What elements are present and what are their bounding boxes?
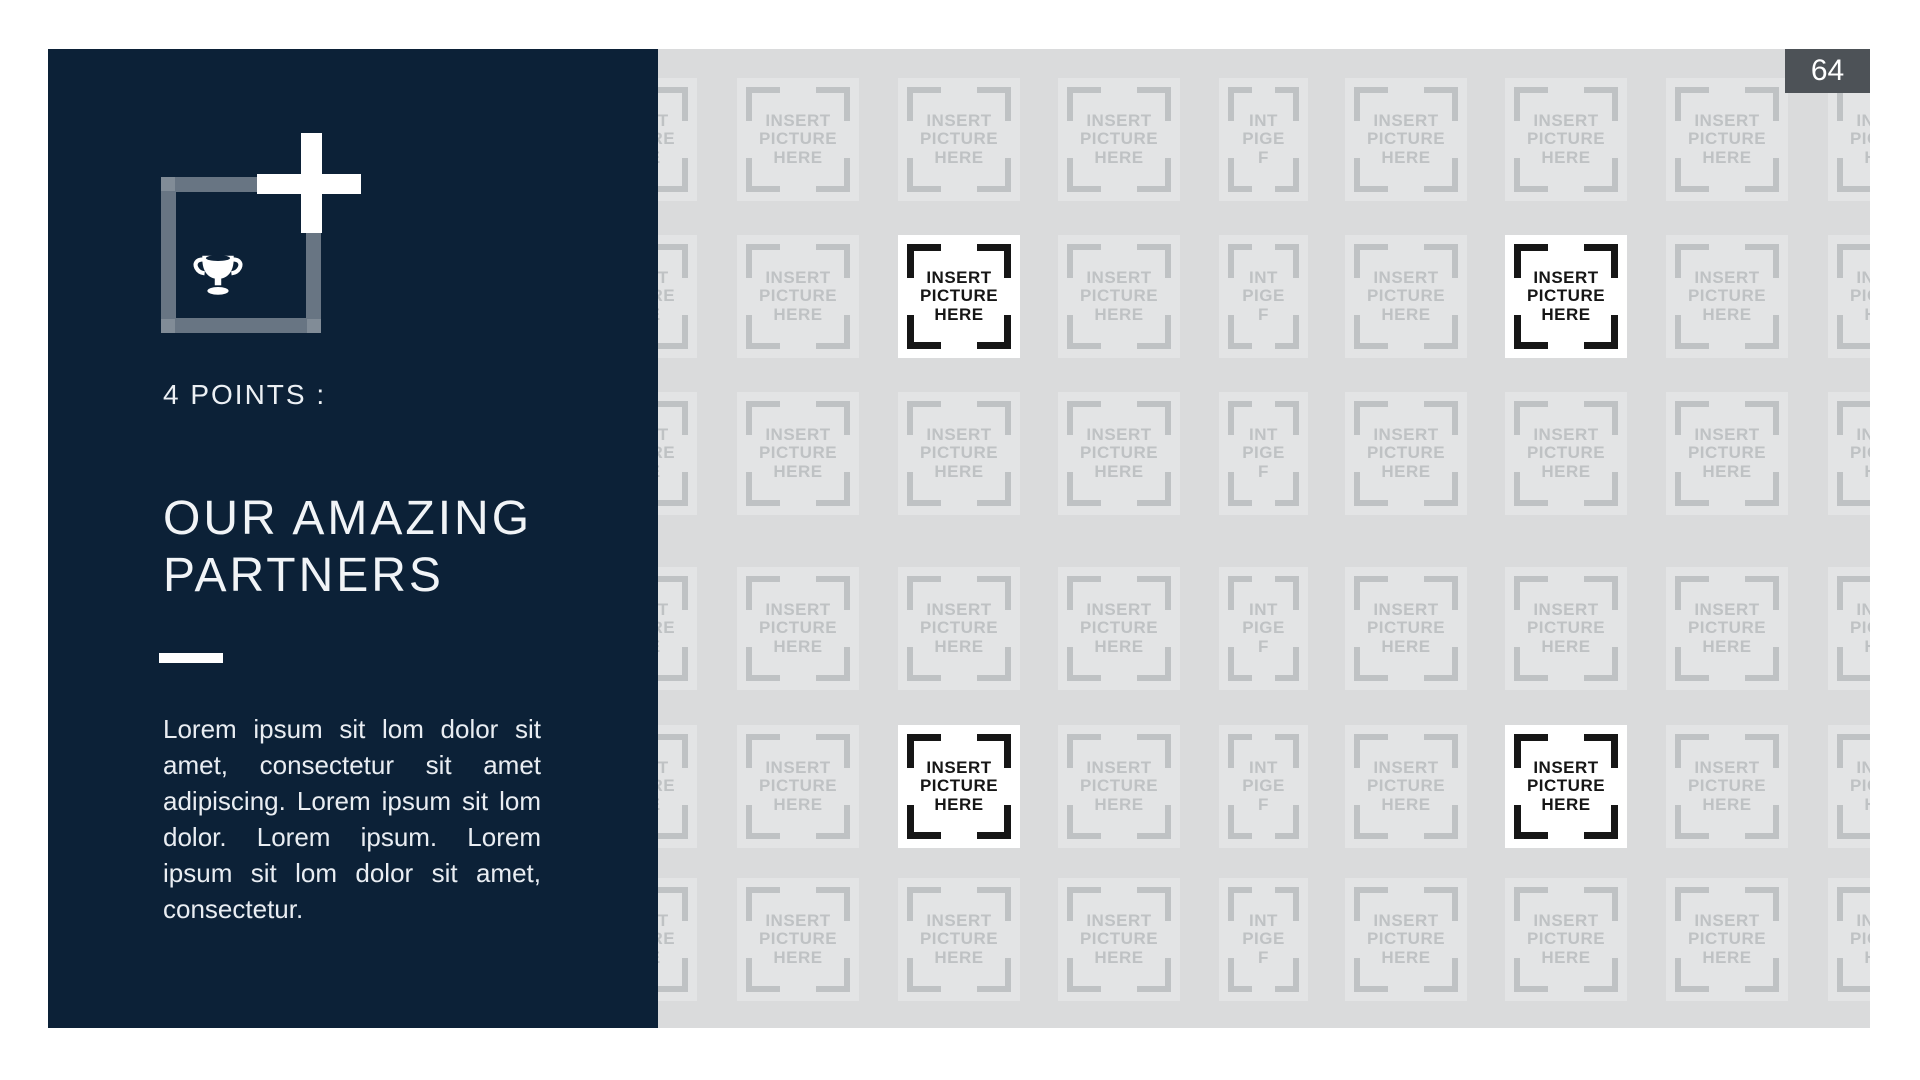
placeholder-label: INSERTPICTUREHERE: [1345, 725, 1467, 848]
placeholder-label-line: PICTURE: [1080, 130, 1158, 149]
placeholder-label: INSERTPICTUREHERE: [1505, 878, 1627, 1001]
placeholder-label: INSERTPICTUREHERE: [1345, 567, 1467, 690]
placeholder-label-line: PICTURE: [1688, 619, 1766, 638]
placeholder-label-line: PIGE: [1242, 619, 1285, 638]
placeholder-label: INSERTPICTUREHERE: [1666, 725, 1788, 848]
placeholder-label-line: PICTURE: [920, 619, 998, 638]
picture-placeholder: INSERTPICTUREHERE: [898, 567, 1020, 690]
placeholder-label-line: INSERT: [1373, 269, 1438, 288]
picture-placeholder: INSERTPICTUREHERE: [1058, 725, 1180, 848]
placeholder-label-line: HERE: [934, 149, 983, 168]
placeholder-label-line: PICTURE: [759, 130, 837, 149]
placeholder-label-line: INSERT: [1856, 759, 1870, 778]
placeholder-label-line: HERE: [1094, 949, 1143, 968]
placeholder-label-line: INSERT: [1694, 601, 1759, 620]
placeholder-label: INSERTPICTUREHERE: [898, 78, 1020, 201]
placeholder-label: INSERTPICTUREHERE: [1345, 235, 1467, 358]
placeholder-label-line: INSERT: [1086, 426, 1151, 445]
placeholder-label: INSERTPICTUREHERE: [898, 725, 1020, 848]
placeholder-label-line: INSERT: [1086, 912, 1151, 931]
placeholder-label-line: HERE: [934, 638, 983, 657]
placeholder-label-line: HERE: [1541, 796, 1590, 815]
frame-corner-accent: [161, 319, 175, 333]
placeholder-label-line: INSERT: [1856, 601, 1870, 620]
placeholder-label-line: PICTURE: [759, 444, 837, 463]
placeholder-label-line: PICTURE: [1850, 130, 1870, 149]
picture-placeholder: INTPIGEF: [1219, 78, 1308, 201]
placeholder-label-line: PICTURE: [1688, 130, 1766, 149]
picture-placeholder: INSERTPICTUREHERE: [1666, 78, 1788, 201]
picture-placeholder: INSERTPICTUREHERE: [737, 392, 859, 515]
placeholder-label-line: INSERT: [1533, 426, 1598, 445]
placeholder-label: INSERTPICTUREHERE: [1828, 567, 1870, 690]
picture-placeholder: INSERTPICTUREHERE: [1828, 725, 1870, 848]
picture-placeholder: INTPIGEF: [1219, 392, 1308, 515]
placeholder-label-line: PICTURE: [1080, 930, 1158, 949]
placeholder-label-line: HERE: [1094, 149, 1143, 168]
placeholder-label-line: INSERT: [1086, 601, 1151, 620]
picture-placeholder: INSERTPICTUREHERE: [1828, 878, 1870, 1001]
placeholder-label-line: PICTURE: [1080, 619, 1158, 638]
placeholder-label: INSERTPICTUREHERE: [898, 878, 1020, 1001]
placeholder-label-line: INSERT: [1373, 912, 1438, 931]
placeholder-label-line: INSERT: [1856, 426, 1870, 445]
picture-placeholder-highlight[interactable]: INSERTPICTUREHERE: [898, 235, 1020, 358]
placeholder-label-line: F: [1258, 796, 1269, 815]
picture-placeholder: INSERTPICTUREHERE: [1666, 878, 1788, 1001]
placeholder-label-line: HERE: [1541, 306, 1590, 325]
placeholder-label: INTPIGEF: [1219, 235, 1308, 358]
trophy-icon: [189, 253, 247, 301]
placeholder-label-line: F: [1258, 149, 1269, 168]
placeholder-label-line: HERE: [1381, 796, 1430, 815]
placeholder-label-line: PIGE: [1242, 287, 1285, 306]
frame-corner-accent: [307, 319, 321, 333]
slide: INSERTPICTUREHEREINSERTPICTUREHEREINSERT…: [48, 49, 1870, 1028]
placeholder-label-line: PICTURE: [1367, 130, 1445, 149]
placeholder-label-line: INSERT: [1694, 269, 1759, 288]
placeholder-label-line: PICTURE: [1527, 619, 1605, 638]
placeholder-label: INSERTPICTUREHERE: [898, 235, 1020, 358]
placeholder-label: INSERTPICTUREHERE: [1828, 392, 1870, 515]
placeholder-label-line: HERE: [1702, 463, 1751, 482]
placeholder-label-line: PICTURE: [1850, 930, 1870, 949]
page-number: 64: [1811, 54, 1844, 88]
placeholder-label: INSERTPICTUREHERE: [1828, 78, 1870, 201]
placeholder-label: INSERTPICTUREHERE: [1345, 78, 1467, 201]
placeholder-label: INSERTPICTUREHERE: [1505, 725, 1627, 848]
placeholder-label: INSERTPICTUREHERE: [1505, 235, 1627, 358]
picture-placeholder: INSERTPICTUREHERE: [1058, 78, 1180, 201]
placeholder-label-line: INSERT: [1694, 759, 1759, 778]
placeholder-label-line: PICTURE: [1080, 287, 1158, 306]
placeholder-label-line: HERE: [1702, 949, 1751, 968]
placeholder-label-line: HERE: [1864, 796, 1870, 815]
placeholder-label-line: PICTURE: [759, 619, 837, 638]
picture-placeholder: INTPIGEF: [1219, 567, 1308, 690]
placeholder-label: INTPIGEF: [1219, 725, 1308, 848]
placeholder-label-line: HERE: [934, 306, 983, 325]
placeholder-label: INSERTPICTUREHERE: [1828, 725, 1870, 848]
placeholder-label-line: PICTURE: [920, 930, 998, 949]
placeholder-label: INSERTPICTUREHERE: [1666, 878, 1788, 1001]
picture-placeholder: INSERTPICTUREHERE: [737, 78, 859, 201]
placeholder-label-line: INSERT: [1086, 759, 1151, 778]
picture-placeholder: INSERTPICTUREHERE: [1345, 567, 1467, 690]
placeholder-label-line: INSERT: [1373, 426, 1438, 445]
placeholder-label-line: PIGE: [1242, 444, 1285, 463]
picture-placeholder: INSERTPICTUREHERE: [1345, 725, 1467, 848]
placeholder-label-line: PICTURE: [1527, 130, 1605, 149]
picture-placeholder-highlight[interactable]: INSERTPICTUREHERE: [898, 725, 1020, 848]
picture-placeholder: INSERTPICTUREHERE: [1345, 235, 1467, 358]
placeholder-label-line: HERE: [1702, 149, 1751, 168]
placeholder-label-line: HERE: [1864, 638, 1870, 657]
placeholder-label-line: HERE: [1864, 463, 1870, 482]
placeholder-label-line: INSERT: [926, 112, 991, 131]
picture-placeholder: INSERTPICTUREHERE: [1345, 878, 1467, 1001]
placeholder-label-line: F: [1258, 949, 1269, 968]
placeholder-label-line: HERE: [773, 149, 822, 168]
picture-placeholder: INSERTPICTUREHERE: [1058, 392, 1180, 515]
placeholder-label-line: INSERT: [1533, 112, 1598, 131]
placeholder-label-line: INSERT: [765, 426, 830, 445]
picture-placeholder: INSERTPICTUREHERE: [1666, 725, 1788, 848]
placeholder-label-line: HERE: [934, 949, 983, 968]
placeholder-label-line: PICTURE: [759, 287, 837, 306]
placeholder-label-line: PICTURE: [759, 777, 837, 796]
placeholder-label-line: INSERT: [1373, 601, 1438, 620]
placeholder-label: INSERTPICTUREHERE: [1058, 567, 1180, 690]
placeholder-label-line: PICTURE: [1688, 444, 1766, 463]
picture-placeholder: INTPIGEF: [1219, 725, 1308, 848]
placeholder-label: INSERTPICTUREHERE: [1505, 392, 1627, 515]
placeholder-label-line: HERE: [934, 796, 983, 815]
placeholder-label-line: INT: [1249, 112, 1278, 131]
slide-title: OUR AMAZING PARTNERS: [163, 490, 532, 604]
placeholder-label-line: INT: [1249, 269, 1278, 288]
placeholder-label: INSERTPICTUREHERE: [737, 878, 859, 1001]
picture-placeholder: INSERTPICTUREHERE: [898, 878, 1020, 1001]
placeholder-label-line: PICTURE: [920, 287, 998, 306]
placeholder-label-line: HERE: [1864, 306, 1870, 325]
placeholder-label-line: INSERT: [765, 269, 830, 288]
picture-placeholder-highlight[interactable]: INSERTPICTUREHERE: [1505, 235, 1627, 358]
picture-placeholder: INSERTPICTUREHERE: [898, 392, 1020, 515]
placeholder-label-line: HERE: [773, 949, 822, 968]
picture-placeholder: INSERTPICTUREHERE: [1505, 78, 1627, 201]
placeholder-label-line: HERE: [934, 463, 983, 482]
slide-title-line-2: PARTNERS: [163, 547, 532, 604]
picture-placeholder: INSERTPICTUREHERE: [737, 725, 859, 848]
placeholder-label-line: INSERT: [1694, 112, 1759, 131]
placeholder-label-line: INT: [1249, 601, 1278, 620]
placeholder-label-line: INSERT: [926, 426, 991, 445]
picture-placeholder: INSERTPICTUREHERE: [1058, 235, 1180, 358]
placeholder-label-line: INSERT: [1373, 112, 1438, 131]
placeholder-label-line: PICTURE: [1367, 930, 1445, 949]
placeholder-label-line: HERE: [773, 463, 822, 482]
picture-placeholder: INSERTPICTUREHERE: [1666, 392, 1788, 515]
placeholder-label: INSERTPICTUREHERE: [737, 392, 859, 515]
picture-placeholder: INSERTPICTUREHERE: [1828, 567, 1870, 690]
placeholder-label-line: PICTURE: [1850, 444, 1870, 463]
slide-page: INSERTPICTUREHEREINSERTPICTUREHEREINSERT…: [0, 0, 1920, 1080]
placeholder-label-line: INSERT: [926, 269, 991, 288]
picture-placeholder: INSERTPICTUREHERE: [737, 878, 859, 1001]
frame-corner-accent: [161, 177, 175, 191]
placeholder-label: INSERTPICTUREHERE: [1666, 235, 1788, 358]
picture-placeholder: INSERTPICTUREHERE: [1058, 567, 1180, 690]
placeholder-label-line: HERE: [1864, 949, 1870, 968]
placeholder-label-line: INSERT: [765, 912, 830, 931]
placeholder-label-line: HERE: [773, 306, 822, 325]
placeholder-label-line: INSERT: [1373, 759, 1438, 778]
placeholder-label-line: HERE: [773, 638, 822, 657]
picture-placeholder: INTPIGEF: [1219, 235, 1308, 358]
placeholder-label: INSERTPICTUREHERE: [1345, 878, 1467, 1001]
placeholder-label-line: INSERT: [1086, 269, 1151, 288]
picture-placeholder: INSERTPICTUREHERE: [1345, 78, 1467, 201]
placeholder-label: INSERTPICTUREHERE: [1666, 567, 1788, 690]
placeholder-label-line: PICTURE: [1080, 444, 1158, 463]
placeholder-label-line: F: [1258, 306, 1269, 325]
placeholder-label: INSERTPICTUREHERE: [898, 567, 1020, 690]
placeholder-label: INSERTPICTUREHERE: [737, 567, 859, 690]
placeholder-label-line: INSERT: [1856, 112, 1870, 131]
placeholder-label-line: PICTURE: [1527, 444, 1605, 463]
placeholder-label-line: PICTURE: [1688, 777, 1766, 796]
placeholder-label-line: HERE: [1094, 638, 1143, 657]
placeholder-label-line: PICTURE: [1527, 287, 1605, 306]
placeholder-label-line: PICTURE: [1527, 777, 1605, 796]
plus-icon: [257, 174, 361, 194]
placeholder-label-line: INSERT: [926, 601, 991, 620]
placeholder-label-line: HERE: [1864, 149, 1870, 168]
placeholder-label-line: INT: [1249, 912, 1278, 931]
placeholder-label-line: HERE: [1541, 463, 1590, 482]
placeholder-label: INTPIGEF: [1219, 878, 1308, 1001]
placeholder-label: INSERTPICTUREHERE: [1666, 392, 1788, 515]
picture-placeholder: INSERTPICTUREHERE: [1828, 235, 1870, 358]
placeholder-label-line: INSERT: [1086, 112, 1151, 131]
placeholder-label-line: INSERT: [1533, 912, 1598, 931]
placeholder-label-line: HERE: [1094, 796, 1143, 815]
picture-placeholder: INSERTPICTUREHERE: [737, 235, 859, 358]
placeholder-label-line: INSERT: [765, 112, 830, 131]
picture-placeholder: INSERTPICTUREHERE: [1058, 878, 1180, 1001]
placeholder-label-line: HERE: [1381, 949, 1430, 968]
placeholder-label: INSERTPICTUREHERE: [1058, 725, 1180, 848]
placeholder-label-line: PICTURE: [920, 444, 998, 463]
title-underline: [159, 653, 223, 663]
placeholder-label-line: HERE: [1381, 638, 1430, 657]
slide-title-line-1: OUR AMAZING: [163, 490, 532, 547]
placeholder-label-line: INSERT: [926, 912, 991, 931]
placeholder-label-line: PICTURE: [920, 130, 998, 149]
placeholder-label-line: F: [1258, 638, 1269, 657]
placeholder-label: INSERTPICTUREHERE: [737, 725, 859, 848]
picture-placeholder: INSERTPICTUREHERE: [1828, 78, 1870, 201]
picture-placeholder: INSERTPICTUREHERE: [1666, 235, 1788, 358]
kicker-label: 4 POINTS :: [163, 379, 326, 411]
picture-placeholder: INSERTPICTUREHERE: [1345, 392, 1467, 515]
placeholder-label-line: HERE: [1702, 306, 1751, 325]
page-number-badge: 64: [1785, 49, 1870, 93]
placeholder-label-line: INT: [1249, 426, 1278, 445]
picture-placeholder: INSERTPICTUREHERE: [1505, 567, 1627, 690]
placeholder-label-line: INSERT: [1533, 269, 1598, 288]
placeholder-label: INTPIGEF: [1219, 567, 1308, 690]
placeholder-label-line: PIGE: [1242, 130, 1285, 149]
placeholder-label-line: HERE: [773, 796, 822, 815]
picture-placeholder-highlight[interactable]: INSERTPICTUREHERE: [1505, 725, 1627, 848]
placeholder-label-line: HERE: [1381, 463, 1430, 482]
placeholder-label-line: PICTURE: [1367, 619, 1445, 638]
placeholder-label-line: PICTURE: [1850, 287, 1870, 306]
picture-placeholder: INSERTPICTUREHERE: [1505, 392, 1627, 515]
placeholder-label-line: INSERT: [765, 759, 830, 778]
placeholder-label-line: HERE: [1702, 796, 1751, 815]
placeholder-label: INSERTPICTUREHERE: [1666, 78, 1788, 201]
placeholder-label: INSERTPICTUREHERE: [737, 235, 859, 358]
placeholder-label: INSERTPICTUREHERE: [898, 392, 1020, 515]
picture-placeholder: INTPIGEF: [1219, 878, 1308, 1001]
placeholder-label-line: PICTURE: [759, 930, 837, 949]
placeholder-label-line: PICTURE: [1080, 777, 1158, 796]
placeholder-label-line: INT: [1249, 759, 1278, 778]
placeholder-label: INSERTPICTUREHERE: [1058, 878, 1180, 1001]
placeholder-label: INSERTPICTUREHERE: [1828, 235, 1870, 358]
placeholder-label-line: INSERT: [1694, 912, 1759, 931]
placeholder-label: INSERTPICTUREHERE: [1505, 78, 1627, 201]
placeholder-label-line: PICTURE: [1688, 930, 1766, 949]
placeholder-label-line: HERE: [1541, 638, 1590, 657]
placeholder-label-line: F: [1258, 463, 1269, 482]
placeholder-label-line: INSERT: [1856, 269, 1870, 288]
placeholder-label-line: HERE: [1541, 149, 1590, 168]
placeholder-label-line: PICTURE: [1850, 777, 1870, 796]
picture-placeholder: INSERTPICTUREHERE: [737, 567, 859, 690]
placeholder-label-line: PICTURE: [1367, 777, 1445, 796]
placeholder-label-line: PICTURE: [1527, 930, 1605, 949]
picture-placeholder: INSERTPICTUREHERE: [1666, 567, 1788, 690]
placeholder-label-line: HERE: [1094, 463, 1143, 482]
placeholder-label: INTPIGEF: [1219, 392, 1308, 515]
placeholder-label: INSERTPICTUREHERE: [1058, 235, 1180, 358]
placeholder-label-line: PIGE: [1242, 777, 1285, 796]
placeholder-label-line: INSERT: [1856, 912, 1870, 931]
left-panel: 4 POINTS : OUR AMAZING PARTNERS Lorem ip…: [48, 49, 658, 1028]
placeholder-label-line: PICTURE: [1367, 444, 1445, 463]
picture-placeholder: INSERTPICTUREHERE: [1828, 392, 1870, 515]
placeholder-label-line: PICTURE: [1850, 619, 1870, 638]
placeholder-label-line: HERE: [1381, 306, 1430, 325]
placeholder-label-line: INSERT: [1533, 601, 1598, 620]
placeholder-label-line: PIGE: [1242, 930, 1285, 949]
placeholder-label-line: PICTURE: [1367, 287, 1445, 306]
placeholder-label-line: INSERT: [1533, 759, 1598, 778]
placeholder-label-line: HERE: [1541, 949, 1590, 968]
placeholder-label: INSERTPICTUREHERE: [737, 78, 859, 201]
placeholder-label-line: HERE: [1381, 149, 1430, 168]
picture-placeholder: INSERTPICTUREHERE: [898, 78, 1020, 201]
placeholder-label: INTPIGEF: [1219, 78, 1308, 201]
placeholder-label-line: PICTURE: [920, 777, 998, 796]
picture-placeholder: INSERTPICTUREHERE: [1505, 878, 1627, 1001]
placeholder-label: INSERTPICTUREHERE: [1058, 78, 1180, 201]
placeholder-label: INSERTPICTUREHERE: [1345, 392, 1467, 515]
placeholder-label-line: INSERT: [926, 759, 991, 778]
placeholder-label-line: PICTURE: [1688, 287, 1766, 306]
placeholder-label: INSERTPICTUREHERE: [1828, 878, 1870, 1001]
placeholder-label: INSERTPICTUREHERE: [1505, 567, 1627, 690]
placeholder-label: INSERTPICTUREHERE: [1058, 392, 1180, 515]
placeholder-label-line: INSERT: [765, 601, 830, 620]
placeholder-label-line: HERE: [1094, 306, 1143, 325]
placeholder-label-line: INSERT: [1694, 426, 1759, 445]
placeholder-label-line: HERE: [1702, 638, 1751, 657]
body-paragraph: Lorem ipsum sit lom dolor sit amet, cons…: [163, 711, 541, 927]
